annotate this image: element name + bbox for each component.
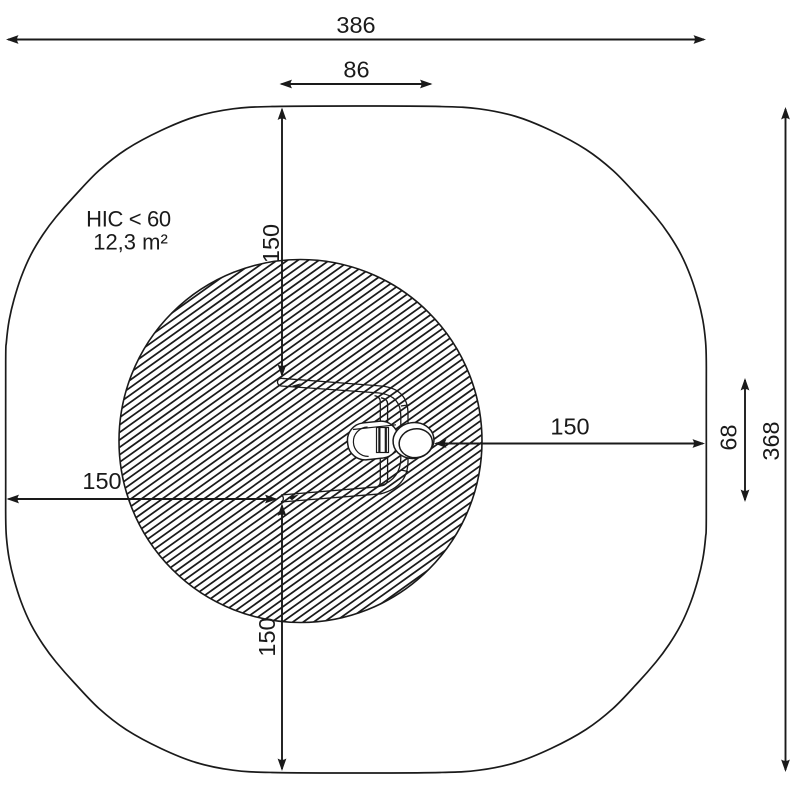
svg-text:150: 150 [254, 617, 280, 656]
svg-text:12,3 m²: 12,3 m² [93, 230, 168, 255]
svg-text:150: 150 [258, 224, 284, 263]
svg-text:68: 68 [716, 424, 742, 450]
svg-text:86: 86 [343, 57, 369, 83]
svg-text:HIC < 60: HIC < 60 [86, 207, 171, 232]
svg-text:150: 150 [550, 414, 589, 440]
svg-text:150: 150 [82, 468, 121, 494]
svg-text:368: 368 [758, 421, 784, 460]
svg-text:386: 386 [336, 12, 375, 38]
